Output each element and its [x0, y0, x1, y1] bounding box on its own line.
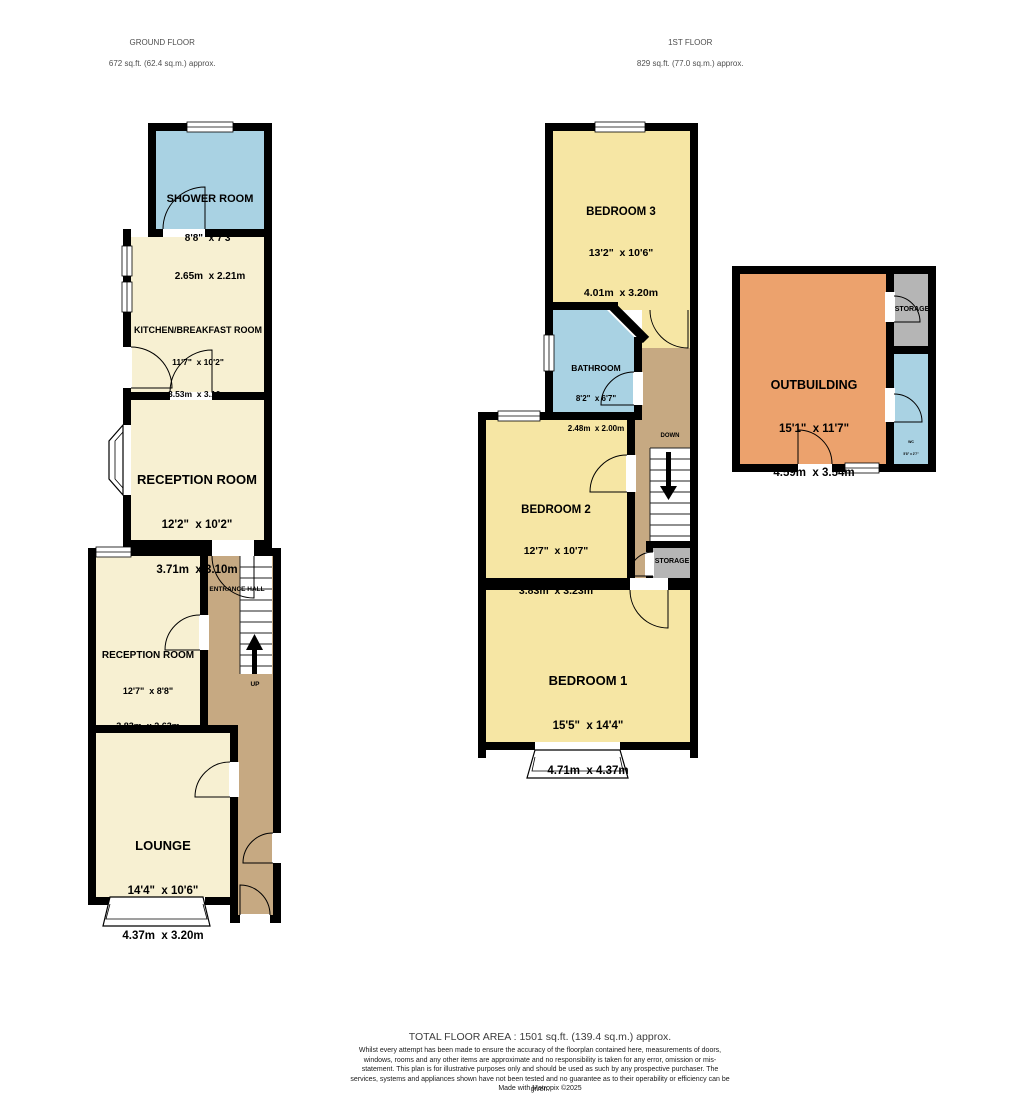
- bay-opening: [123, 425, 131, 495]
- down-arrow-shaft: [666, 452, 671, 486]
- room-dims-imperial: 12'7" x 8'8": [102, 686, 194, 697]
- door-gap: [229, 762, 239, 797]
- wall: [230, 733, 238, 923]
- wall: [148, 123, 156, 237]
- wall: [545, 123, 553, 420]
- wall: [928, 266, 936, 472]
- first-floor-title: 1ST FLOOR: [668, 38, 712, 47]
- room-label-bathroom: BATHROOM 8'2" x 6'7" 2.48m x 2.00m: [568, 343, 624, 444]
- room-dims-metric: 4.59m x 3.54m: [771, 467, 858, 481]
- room-name: WC: [900, 440, 922, 444]
- room-label-bedroom-3: BEDROOM 3 13'2" x 10'6" 4.01m x 3.20m: [584, 178, 658, 314]
- wall: [273, 548, 281, 923]
- down-label: DOWN: [661, 433, 680, 439]
- bedroom-3-doorway-floor: [642, 310, 690, 348]
- wall: [732, 266, 936, 274]
- room-dims-metric: 3.83m x 3.23m: [519, 585, 593, 598]
- metropix-credit: Made with Metropix ©2025: [498, 1085, 581, 1092]
- door-gap: [272, 833, 282, 863]
- door-gap: [645, 552, 654, 576]
- room-name: BEDROOM 2: [519, 504, 593, 518]
- room-name: BATHROOM: [568, 363, 624, 373]
- ground-floor-title: GROUND FLOOR: [130, 38, 195, 47]
- room-name: BEDROOM 1: [547, 673, 628, 689]
- wall: [732, 266, 740, 472]
- room-label-lounge: LOUNGE 14'4" x 10'6" 4.37m x 3.20m: [122, 807, 203, 959]
- door-gap: [885, 292, 895, 322]
- room-label-bedroom-2: BEDROOM 2 12'7" x 10'7" 3.83m x 3.23m: [519, 476, 593, 612]
- first-floor-header: 1ST FLOOR 829 sq.ft. (77.0 sq.m.) approx…: [632, 28, 743, 70]
- room-dims-metric: 4.37m x 3.20m: [122, 930, 203, 944]
- room-name: RECEPTION ROOM: [102, 650, 194, 662]
- storage-outbuilding-label: STORAGE: [895, 306, 930, 313]
- ground-floor-area: 672 sq.ft. (62.4 sq.m.) approx.: [109, 59, 216, 68]
- entrance-hall-floor-lower: [238, 733, 273, 923]
- room-dims-metric: 4.71m x 4.37m: [547, 765, 628, 779]
- room-label-kitchen: KITCHEN/BREAKFAST ROOM 11'7" x 10'2" 3.5…: [134, 303, 262, 410]
- room-name: OUTBUILDING: [771, 378, 858, 393]
- wall: [886, 346, 936, 354]
- room-dims-imperial: 8'2" x 6'7": [568, 394, 624, 404]
- door-gap: [633, 372, 643, 405]
- room-dims-imperial: 11'7" x 10'2": [134, 357, 262, 367]
- up-arrow-shaft: [252, 648, 257, 674]
- room-dims-imperial: 5'8" x 2'7": [900, 453, 922, 457]
- door-gap: [630, 578, 668, 590]
- room-dims-imperial: 12'2" x 10'2": [137, 519, 257, 533]
- room-label-reception-room-2: RECEPTION ROOM 12'7" x 8'8" 3.83m x 2.63…: [102, 626, 194, 744]
- bay-window: [109, 425, 123, 495]
- room-dims-imperial: 15'5" x 14'4": [547, 720, 628, 734]
- wall: [88, 548, 96, 905]
- room-dims-metric: 1.73m x 0.79m: [900, 465, 922, 469]
- door-gap: [240, 914, 270, 924]
- ground-floor-header: GROUND FLOOR 672 sq.ft. (62.4 sq.m.) app…: [104, 28, 215, 70]
- wall: [264, 123, 272, 556]
- room-dims-imperial: 15'1" x 11'7": [771, 423, 858, 437]
- first-floor-area: 829 sq.ft. (77.0 sq.m.) approx.: [637, 59, 744, 68]
- landing-floor: [650, 412, 690, 448]
- room-dims-imperial: 12'7" x 10'7": [519, 545, 593, 558]
- wall: [627, 412, 635, 582]
- door-gap: [199, 615, 209, 650]
- room-dims-imperial: 14'4" x 10'6": [122, 885, 203, 899]
- room-name: RECEPTION ROOM: [137, 472, 257, 488]
- floorplan-page: GROUND FLOOR 672 sq.ft. (62.4 sq.m.) app…: [0, 0, 1020, 1099]
- room-dims-metric: 4.01m x 3.20m: [584, 287, 658, 300]
- room-name: KITCHEN/BREAKFAST ROOM: [134, 325, 262, 336]
- room-label-reception-room-1: RECEPTION ROOM 12'2" x 10'2" 3.71m x 3.1…: [137, 441, 257, 593]
- door-gap: [885, 388, 895, 422]
- up-label: UP: [250, 681, 259, 688]
- room-dims-metric: 3.71m x 3.10m: [137, 564, 257, 578]
- wall: [646, 541, 698, 548]
- wall: [690, 123, 698, 758]
- room-label-outbuilding: OUTBUILDING 15'1" x 11'7" 4.59m x 3.54m: [771, 348, 858, 496]
- landing-floor: [642, 348, 690, 412]
- storage-first-floor-label: STORAGE: [655, 558, 690, 565]
- room-name: LOUNGE: [122, 838, 203, 854]
- room-dims-metric: 3.83m x 2.63m: [102, 721, 194, 732]
- room-dims-metric: 2.48m x 2.00m: [568, 424, 624, 434]
- room-name: BEDROOM 3: [584, 206, 658, 220]
- room-label-bedroom-1: BEDROOM 1 15'5" x 14'4" 4.71m x 4.37m: [547, 642, 628, 794]
- staircase-down: [650, 448, 690, 545]
- door-gap: [122, 347, 132, 388]
- room-dims-imperial: 8'8" x 7'3": [167, 233, 254, 245]
- entrance-hall-label: ENTRANCE HALL: [209, 586, 264, 593]
- room-dims-metric: 3.53m x 3.10m: [134, 389, 262, 399]
- door-gap: [626, 455, 636, 492]
- room-dims-imperial: 13'2" x 10'6": [584, 247, 658, 260]
- total-floor-area: TOTAL FLOOR AREA : 1501 sq.ft. (139.4 sq…: [409, 1031, 671, 1043]
- room-label-wc: WC 5'8" x 2'7" 1.73m x 0.79m: [900, 432, 922, 473]
- room-name: SHOWER ROOM: [167, 193, 254, 206]
- room-dims-metric: 2.65m x 2.21m: [167, 271, 254, 283]
- room-label-shower-room: SHOWER ROOM 8'8" x 7'3" 2.65m x 2.21m: [167, 167, 254, 297]
